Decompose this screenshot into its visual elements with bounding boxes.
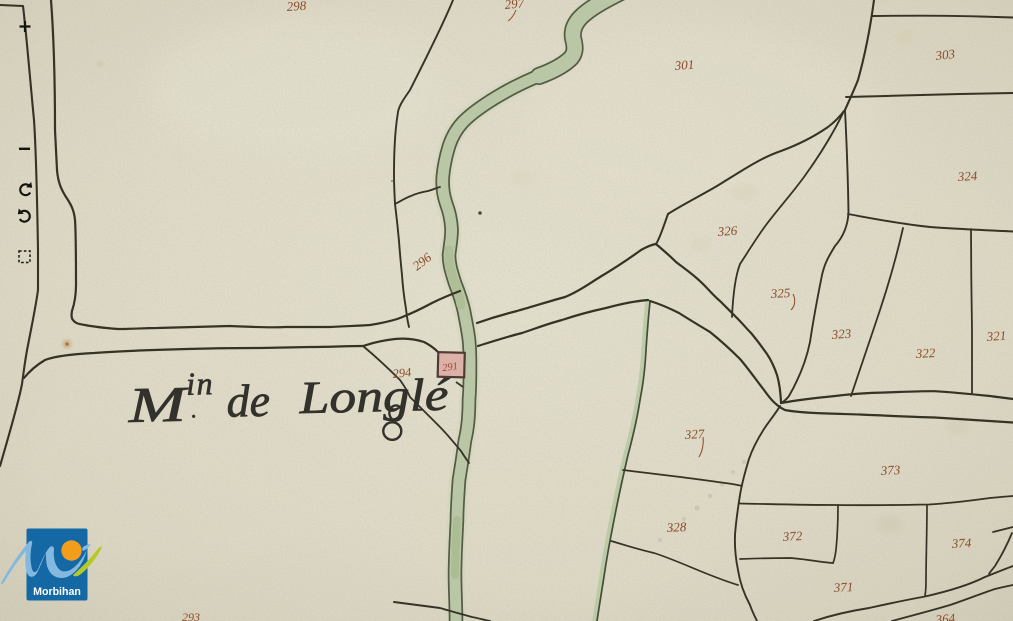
svg-text:374: 374 <box>950 535 972 551</box>
svg-text:322: 322 <box>914 345 936 361</box>
svg-text:303: 303 <box>934 46 956 63</box>
svg-text:325: 325 <box>769 285 791 301</box>
svg-text:298: 298 <box>286 0 307 14</box>
svg-text:328: 328 <box>665 519 687 535</box>
svg-text:364: 364 <box>934 610 956 621</box>
svg-text:372: 372 <box>781 528 803 544</box>
svg-text:326: 326 <box>716 223 738 239</box>
svg-text:Longlé: Longlé <box>298 369 452 423</box>
svg-text:323: 323 <box>830 326 852 342</box>
svg-text:301: 301 <box>673 57 694 73</box>
svg-text:373: 373 <box>879 462 901 478</box>
svg-text:327: 327 <box>683 426 705 442</box>
svg-text:321: 321 <box>985 328 1006 344</box>
svg-text:.: . <box>190 393 198 424</box>
svg-text:324: 324 <box>956 168 978 184</box>
svg-text:M: M <box>127 376 190 433</box>
svg-text:293: 293 <box>182 610 200 621</box>
svg-text:291: 291 <box>442 361 459 374</box>
svg-text:Morbihan: Morbihan <box>33 586 81 598</box>
svg-text:371: 371 <box>832 579 853 595</box>
svg-text:297: 297 <box>504 0 525 12</box>
svg-text:de: de <box>226 375 271 427</box>
